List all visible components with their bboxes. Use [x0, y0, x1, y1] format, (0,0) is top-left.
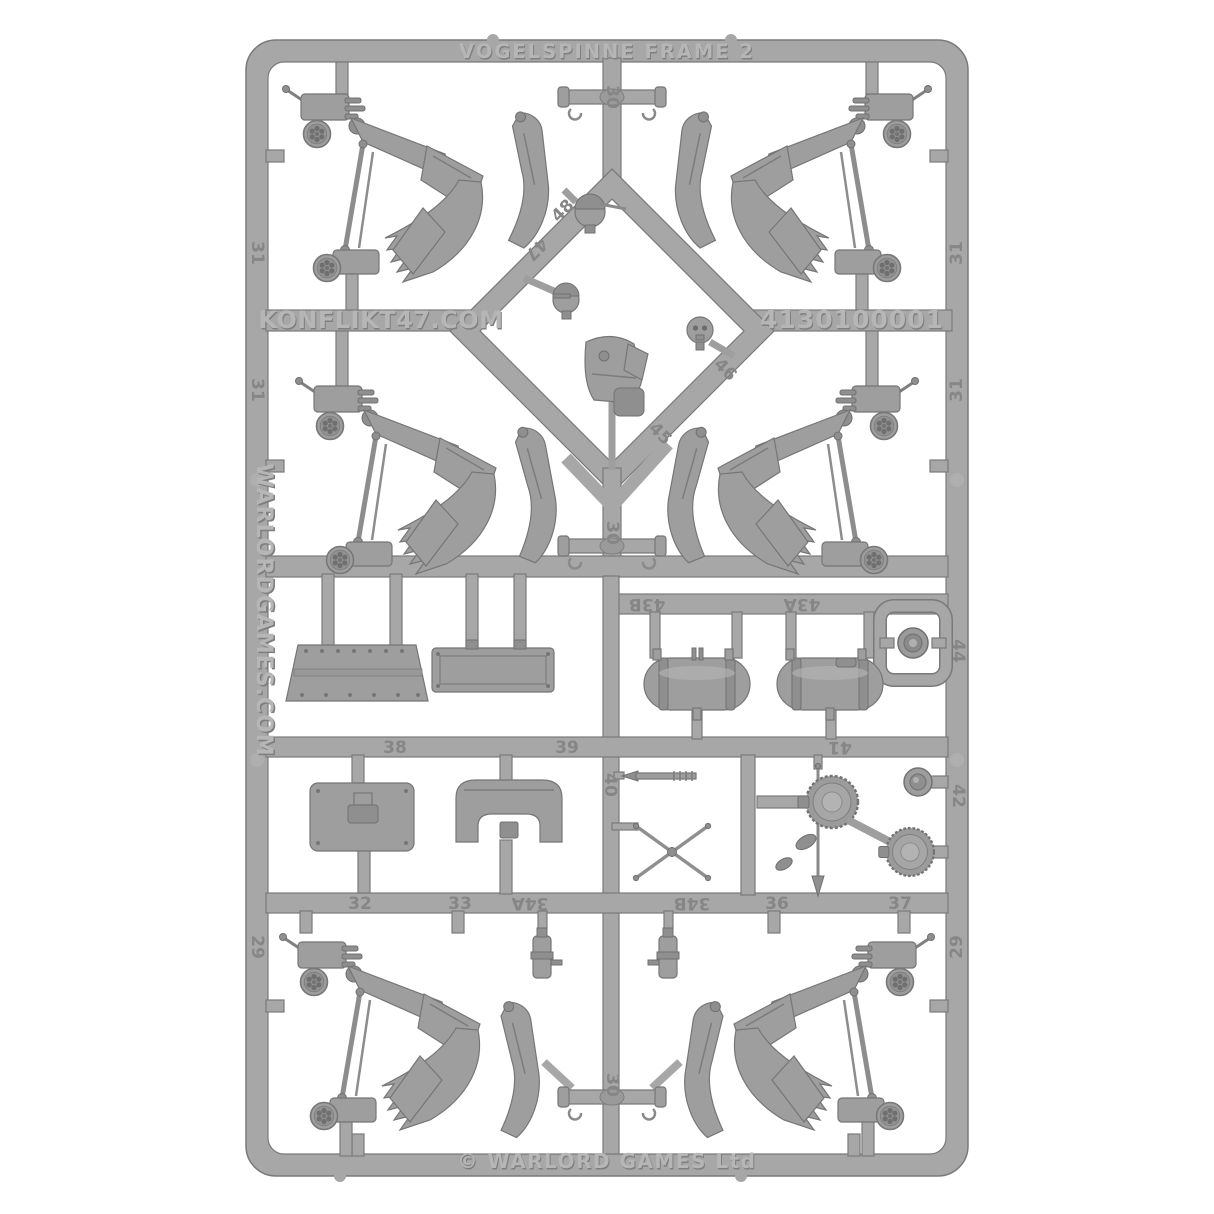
- svg-text:4130100001: 4130100001: [760, 305, 944, 334]
- part-40-rod: [622, 771, 696, 781]
- svg-text:WARLORDGAMES.COM: WARLORDGAMES.COM: [251, 463, 276, 756]
- stamp-37: 37: [888, 894, 912, 914]
- part-38-armour-plate: [286, 645, 428, 701]
- warlordgames-url: WARLORDGAMES.COM WARLORDGAMES.COM: [251, 463, 278, 758]
- part-42-dome: [904, 768, 932, 796]
- svg-text:KONFLIKT47.COM: KONFLIKT47.COM: [258, 306, 503, 334]
- ejector-bump: [334, 1170, 346, 1182]
- stamp-34b: 34B: [674, 893, 711, 913]
- part-43b-fuel-tank: [644, 648, 750, 720]
- part-32-hatch-plate: [310, 783, 414, 851]
- stamp-31-mid-right: 31: [947, 378, 967, 402]
- stamp-33: 33: [448, 894, 472, 914]
- stamp-29-bottom-right: 29: [947, 935, 967, 959]
- stamp-36: 36: [765, 894, 789, 914]
- konflikt47-url: KONFLIKT47.COM KONFLIKT47.COM: [258, 306, 504, 336]
- stamp-31-mid-left: 31: [247, 378, 267, 402]
- stamp-31-upper-left: 31: [247, 241, 267, 265]
- sprue-photo: VOGELSPINNE FRAME 2 VOGELSPINNE FRAME 2 …: [0, 0, 1214, 1214]
- stamp-30-mid: 30: [602, 521, 622, 545]
- stamp-43b: 43B: [629, 594, 666, 614]
- stamp-29-bottom-left: 29: [247, 935, 267, 959]
- part-39-hull-box: [432, 640, 554, 692]
- stamp-30-top: 30: [602, 85, 622, 109]
- stamp-34a: 34A: [511, 893, 549, 913]
- stamp-43a: 43A: [783, 594, 821, 614]
- svg-text:© WARLORD GAMES Ltd: © WARLORD GAMES Ltd: [458, 1149, 757, 1173]
- copyright-text: © WARLORD GAMES Ltd © WARLORD GAMES Ltd: [458, 1149, 758, 1175]
- product-code: 4130100001 4130100001: [760, 305, 945, 336]
- stamp-41: 41: [828, 737, 852, 757]
- part-44-lens: [898, 628, 928, 658]
- frame-title: VOGELSPINNE FRAME 2 VOGELSPINNE FRAME 2: [459, 40, 756, 65]
- stamp-40: 40: [600, 773, 620, 797]
- stamp-42: 42: [948, 784, 968, 808]
- part-33-canopy: [456, 780, 562, 842]
- part-43a-fuel-tank: [777, 649, 883, 720]
- sprue-photo-stage: VOGELSPINNE FRAME 2 VOGELSPINNE FRAME 2 …: [0, 0, 1214, 1214]
- stamp-38: 38: [383, 738, 407, 758]
- stamp-32: 32: [348, 894, 372, 914]
- stamp-31-upper-right: 31: [947, 241, 967, 265]
- stamp-44: 44: [948, 639, 968, 663]
- svg-text:VOGELSPINNE FRAME 2: VOGELSPINNE FRAME 2: [459, 40, 755, 63]
- stamp-39: 39: [555, 738, 579, 758]
- stamp-30-bottom: 30: [602, 1073, 622, 1097]
